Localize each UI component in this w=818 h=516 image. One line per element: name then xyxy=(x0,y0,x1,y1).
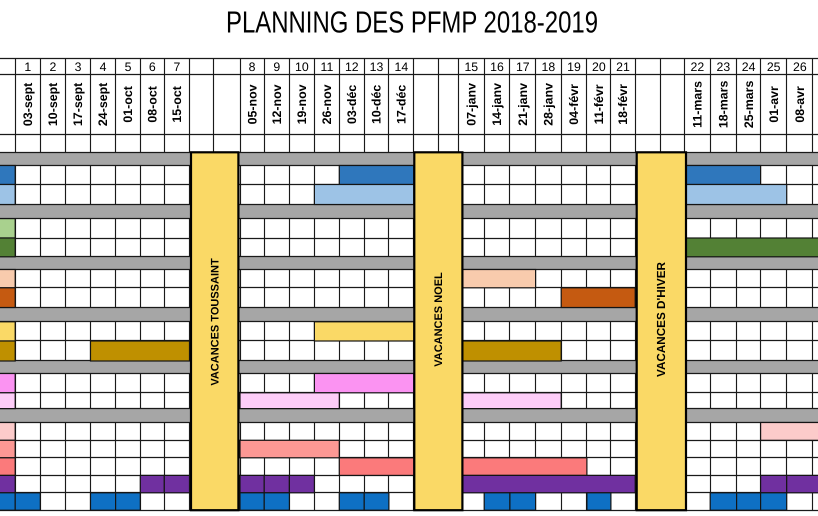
svg-text:VACANCES D'HIVER: VACANCES D'HIVER xyxy=(655,261,668,376)
svg-text:7: 7 xyxy=(173,60,180,74)
svg-text:24-sept: 24-sept xyxy=(96,83,110,126)
svg-text:25-mars: 25-mars xyxy=(742,81,756,129)
svg-text:05-nov: 05-nov xyxy=(245,84,259,124)
svg-text:VACANCES TOUSSAINT: VACANCES TOUSSAINT xyxy=(209,258,221,386)
svg-text:13: 13 xyxy=(370,60,384,74)
svg-text:5: 5 xyxy=(125,60,132,74)
svg-text:PLANNING DES PFMP 2018-2019: PLANNING DES PFMP 2018-2019 xyxy=(226,6,598,40)
svg-text:14-janv: 14-janv xyxy=(490,83,504,126)
svg-text:12: 12 xyxy=(345,60,359,74)
svg-text:9: 9 xyxy=(273,60,280,74)
svg-text:12-nov: 12-nov xyxy=(270,84,284,124)
svg-text:08-avr: 08-avr xyxy=(793,86,807,123)
svg-text:28-janv: 28-janv xyxy=(542,83,556,126)
svg-text:18: 18 xyxy=(542,60,556,74)
svg-text:18-févr: 18-févr xyxy=(616,84,630,125)
svg-text:21-janv: 21-janv xyxy=(516,83,530,126)
svg-text:6: 6 xyxy=(149,60,156,74)
svg-text:1: 1 xyxy=(24,60,31,74)
svg-text:10-sept: 10-sept xyxy=(46,83,60,126)
svg-text:19: 19 xyxy=(567,60,581,74)
svg-text:11-mars: 11-mars xyxy=(691,81,705,128)
svg-text:11: 11 xyxy=(321,60,334,74)
svg-text:26-nov: 26-nov xyxy=(320,84,334,124)
svg-text:8: 8 xyxy=(249,60,256,74)
svg-text:4: 4 xyxy=(100,60,107,74)
svg-text:17-déc: 17-déc xyxy=(395,85,409,124)
svg-text:25: 25 xyxy=(767,60,781,74)
svg-text:VACANCES NOEL: VACANCES NOEL xyxy=(433,272,445,367)
svg-text:14: 14 xyxy=(395,60,409,74)
svg-text:21: 21 xyxy=(616,60,630,74)
svg-text:11-févr: 11-févr xyxy=(592,84,606,124)
svg-text:10-déc: 10-déc xyxy=(370,85,384,124)
svg-text:10: 10 xyxy=(295,60,309,74)
svg-text:01-avr: 01-avr xyxy=(767,86,781,123)
svg-text:23: 23 xyxy=(717,60,731,74)
svg-text:15: 15 xyxy=(464,60,478,74)
svg-text:19-nov: 19-nov xyxy=(295,84,309,124)
svg-text:04-févr: 04-févr xyxy=(567,84,581,125)
svg-text:18-mars: 18-mars xyxy=(717,81,731,129)
svg-text:20: 20 xyxy=(592,60,606,74)
svg-text:07-janv: 07-janv xyxy=(465,83,479,126)
svg-text:16: 16 xyxy=(490,60,504,74)
svg-text:03-déc: 03-déc xyxy=(345,85,359,124)
svg-text:3: 3 xyxy=(75,60,82,74)
svg-text:01-oct: 01-oct xyxy=(121,86,135,123)
svg-text:15-oct: 15-oct xyxy=(170,86,184,123)
svg-text:26: 26 xyxy=(793,60,807,74)
svg-text:03-sept: 03-sept xyxy=(21,83,35,126)
svg-text:17: 17 xyxy=(516,60,530,74)
svg-text:08-oct: 08-oct xyxy=(146,86,160,123)
svg-text:22: 22 xyxy=(691,60,705,74)
svg-text:2: 2 xyxy=(49,60,56,74)
svg-text:24: 24 xyxy=(742,60,756,74)
svg-text:17-sept: 17-sept xyxy=(71,83,85,126)
